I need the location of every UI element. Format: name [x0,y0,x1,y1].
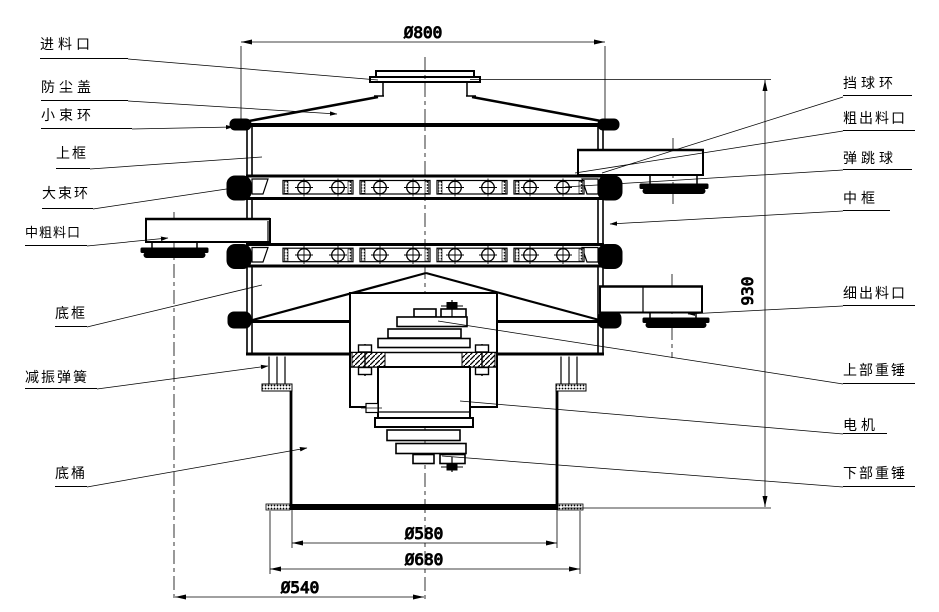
lower-weight [387,430,466,472]
label-base-barrel: 底桶 [55,467,87,487]
sieve-deck-upper [227,176,622,200]
label-motor: 电机 [843,419,887,434]
label-bottom-frame: 底框 [55,307,87,327]
dim-text-overall-height: 930 [738,277,757,306]
motor-assembly [350,293,497,472]
label-mid-coarse-outlet: 中粗料口 [25,227,87,246]
label-upper-frame: 上框 [56,147,90,169]
large-clamp-ring-right [598,176,622,200]
label-coarse-outlet: 粗出料口 [843,112,915,131]
label-feed-inlet: 进料口 [40,38,128,59]
label-bouncing-ball: 弹跳球 [843,152,912,170]
technical-drawing: Ø800 930 Ø580 Ø680 Ø540 进料口 防尘盖 小束环 上框 大… [0,0,939,612]
label-fine-outlet: 细出料口 [843,287,915,306]
label-middle-frame: 中框 [843,192,890,211]
dim-top-diameter [241,40,605,123]
label-large-clamp-ring: 大束环 [42,187,93,209]
label-small-clamp-ring: 小束环 [41,109,132,129]
small-clamp-ring-left [230,119,251,130]
small-clamp-ring-right [598,119,619,130]
large-clamp-ring-left [227,176,251,200]
label-lower-weight: 下部重锤 [843,467,915,487]
sieve-deck-lower [227,245,622,269]
label-ball-stop-ring: 挡球环 [843,77,912,96]
dim-text-barrel-diameter: Ø580 [405,524,444,543]
dust-cover [230,97,619,130]
label-dust-cover: 防尘盖 [41,81,128,101]
drawing-canvas: Ø800 930 Ø580 Ø680 Ø540 [0,0,939,612]
dim-text-outlet-circle-diameter: Ø540 [281,578,320,597]
dim-text-base-flange-diameter: Ø680 [405,550,444,569]
label-upper-weight: 上部重锤 [843,364,915,384]
motor-body [361,367,473,427]
dim-text-top-diameter: Ø800 [404,23,443,42]
label-damping-spring: 减振弹簧 [25,371,97,389]
